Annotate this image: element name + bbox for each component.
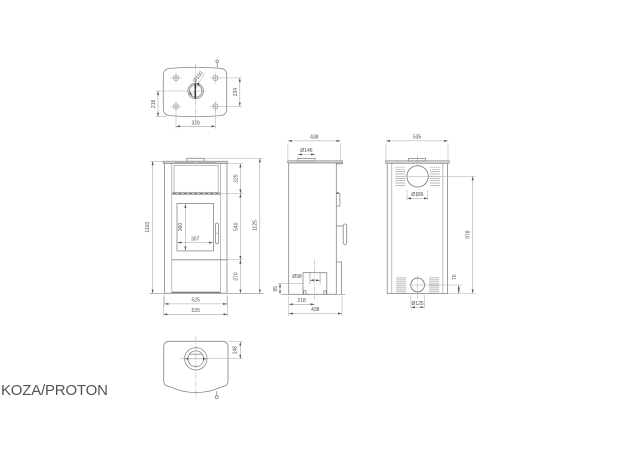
- svg-text:438: 438: [310, 135, 319, 141]
- svg-text:360: 360: [178, 223, 184, 232]
- svg-text:234: 234: [233, 88, 239, 97]
- svg-text:70: 70: [452, 274, 458, 280]
- svg-text:1125: 1125: [253, 220, 259, 231]
- svg-text:218: 218: [151, 100, 157, 109]
- svg-text:KOZA/PROTON: KOZA/PROTON: [1, 382, 108, 399]
- svg-text:225: 225: [233, 174, 239, 183]
- svg-text:Ø146: Ø146: [300, 148, 312, 154]
- svg-text:270: 270: [233, 272, 239, 281]
- svg-text:95: 95: [273, 286, 279, 292]
- svg-text:307: 307: [191, 236, 200, 242]
- svg-text:Ø186: Ø186: [411, 192, 423, 198]
- svg-text:525: 525: [192, 298, 201, 304]
- svg-text:535: 535: [413, 135, 422, 141]
- svg-text:Ø125: Ø125: [411, 301, 423, 307]
- svg-text:326: 326: [192, 121, 201, 127]
- svg-text:148: 148: [233, 346, 239, 355]
- svg-text:535: 535: [192, 308, 201, 314]
- svg-text:Ø150: Ø150: [192, 70, 204, 84]
- svg-text:540: 540: [233, 222, 239, 231]
- svg-text:978: 978: [465, 230, 471, 239]
- svg-text:218: 218: [297, 298, 306, 304]
- svg-text:1103: 1103: [145, 222, 151, 233]
- svg-text:438: 438: [311, 307, 320, 313]
- svg-text:Ø98: Ø98: [292, 274, 302, 280]
